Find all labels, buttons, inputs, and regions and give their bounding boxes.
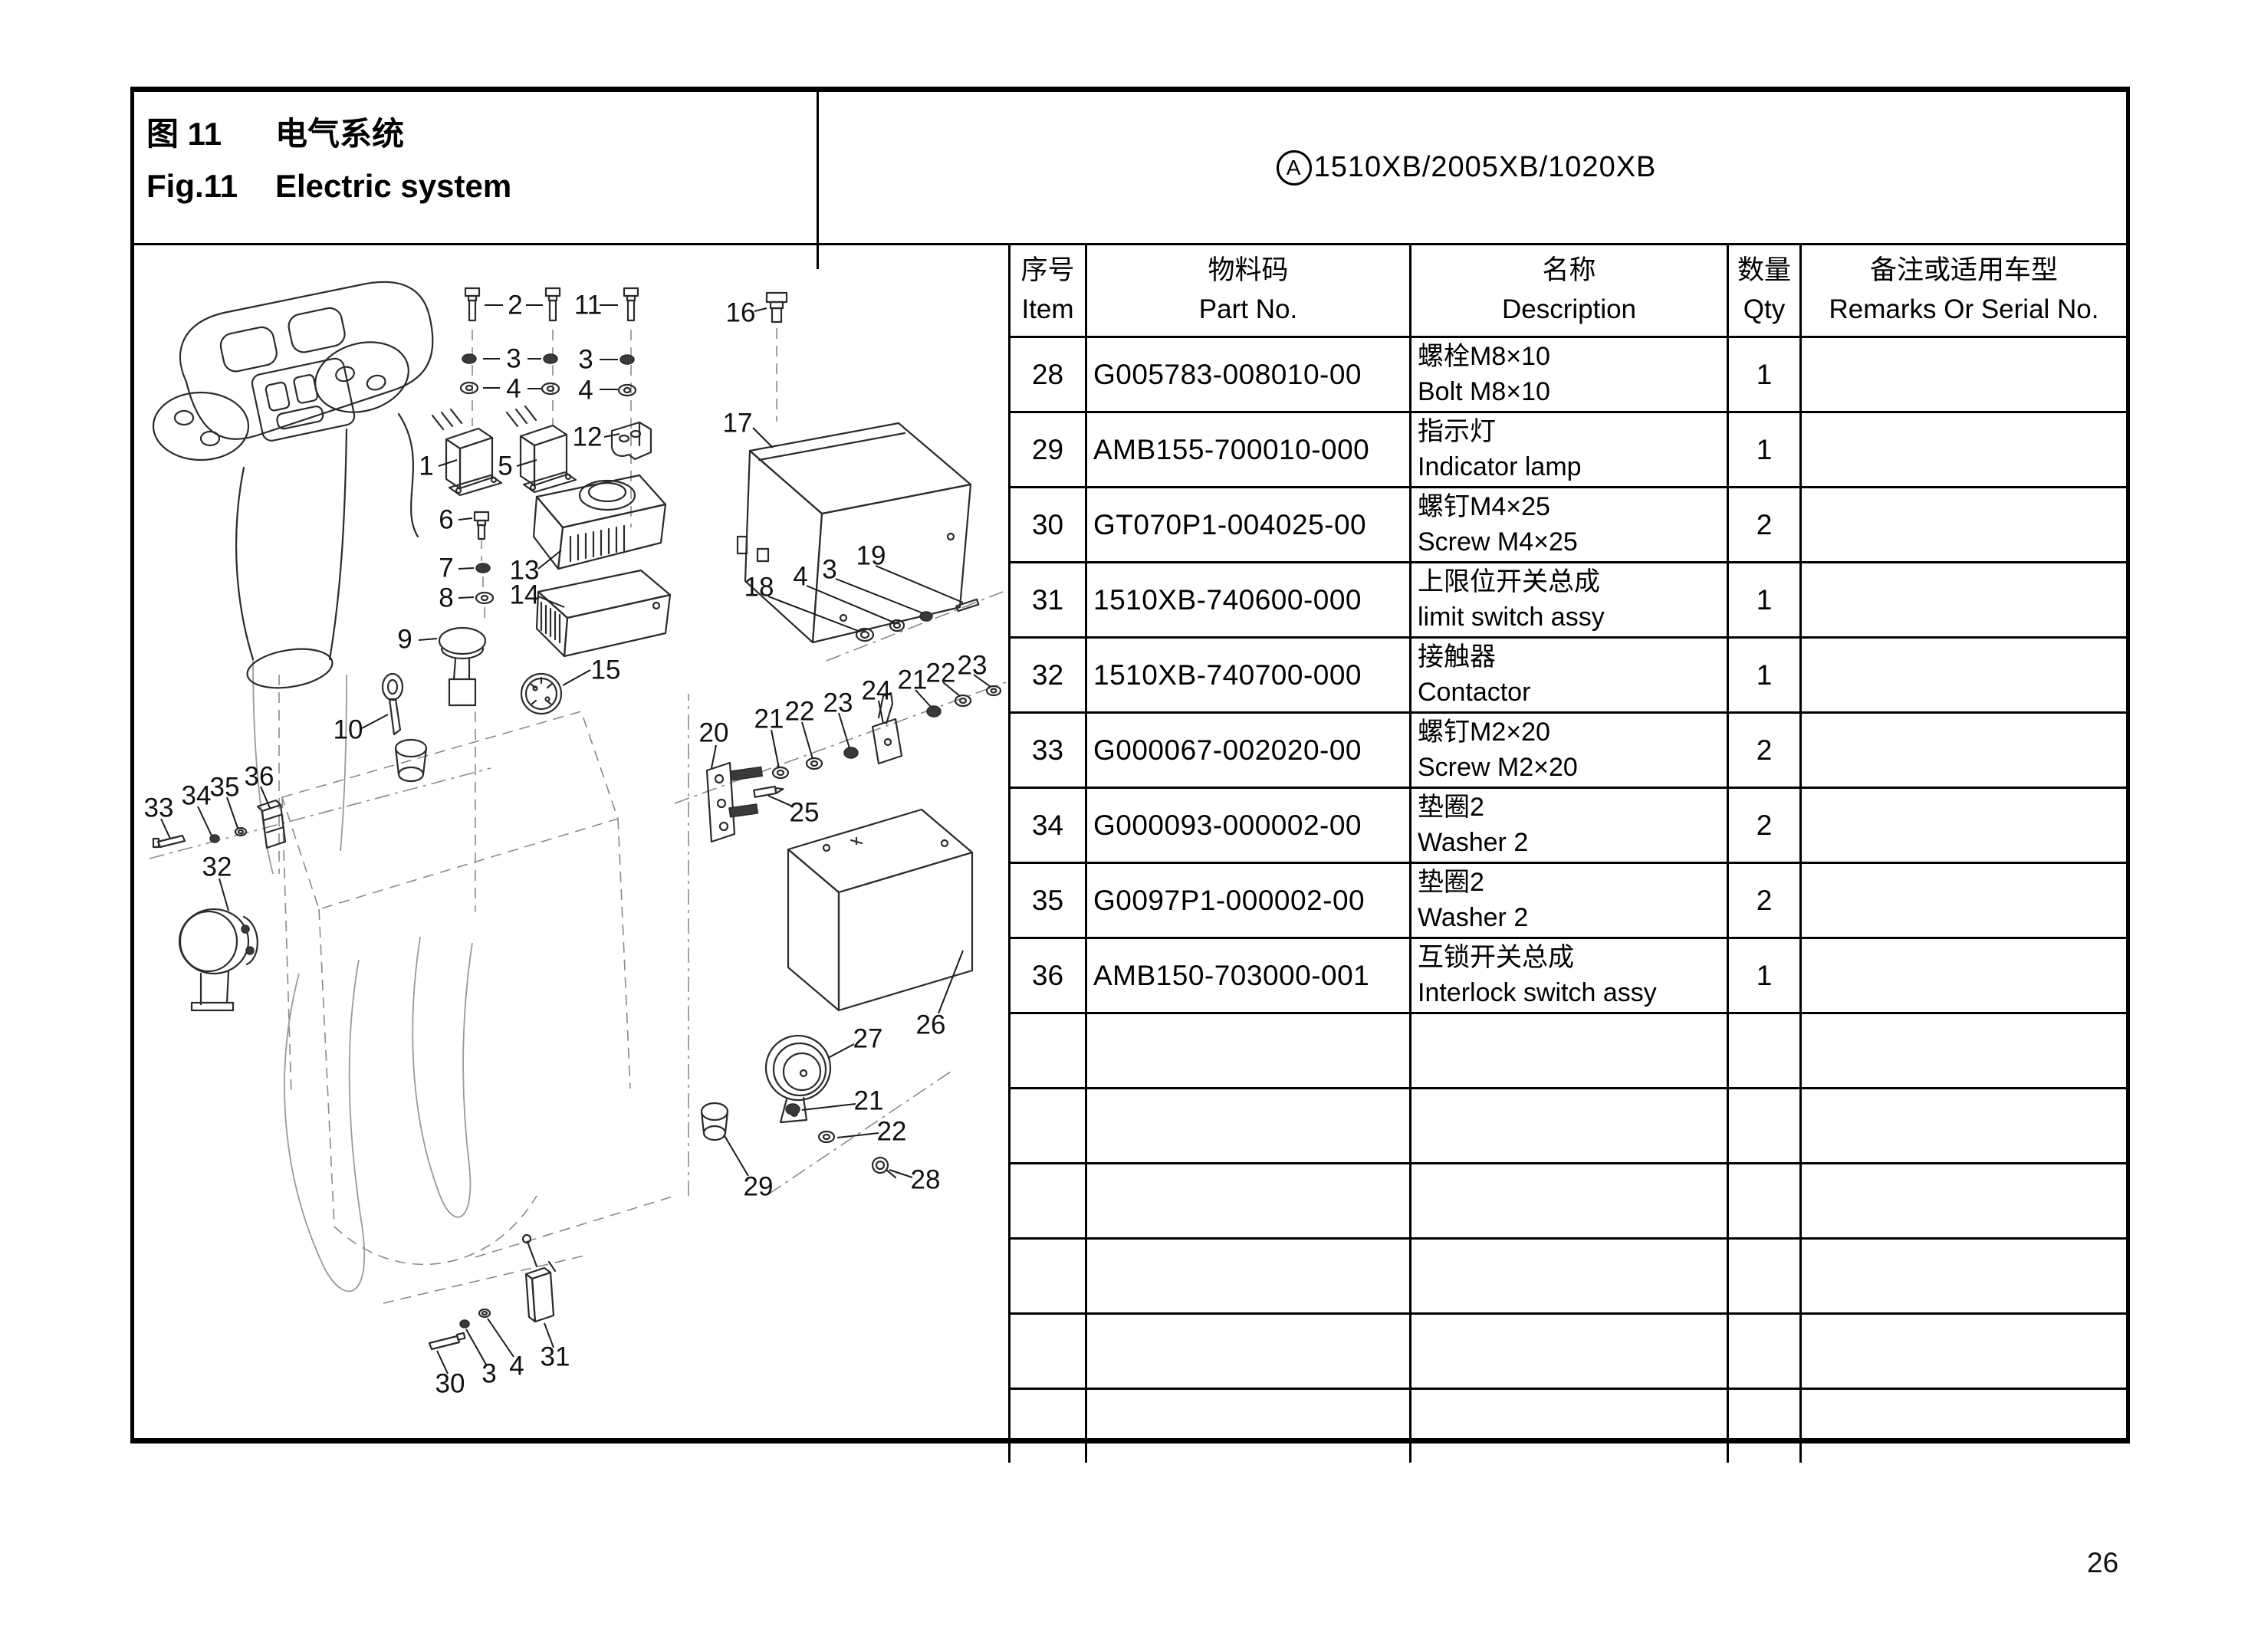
cell-part-no: G000067-002020-00 <box>1086 713 1411 788</box>
table-row-empty <box>1010 1013 2127 1089</box>
callout-26: 26 <box>916 1010 946 1040</box>
callout-3: 3 <box>481 1359 496 1389</box>
callout-23: 23 <box>823 688 853 718</box>
cell-item: 29 <box>1010 412 1086 488</box>
callout-28: 28 <box>911 1165 941 1195</box>
cell-qty: 2 <box>1728 788 1801 863</box>
callout-22: 22 <box>877 1117 907 1147</box>
callout-29: 29 <box>744 1172 774 1202</box>
table-row-empty <box>1010 1389 2127 1463</box>
callout-12: 12 <box>573 422 603 452</box>
callout-25: 25 <box>790 798 820 828</box>
callout-22: 22 <box>926 659 956 688</box>
callout-34: 34 <box>182 781 212 811</box>
callout-9: 9 <box>397 625 412 655</box>
callout-3: 3 <box>578 345 593 375</box>
table-row-34: 34 G000093-000002-00 垫圈2Washer 2 2 <box>1010 788 2127 863</box>
page-number: 26 <box>2087 1547 2118 1579</box>
cell-item: 36 <box>1010 938 1086 1013</box>
table-row-32: 32 1510XB-740700-000 接触器Contactor 1 <box>1010 638 2127 713</box>
col-header-description: 名称Description <box>1411 245 1728 337</box>
callout-10: 10 <box>334 715 363 745</box>
callout-11: 11 <box>574 291 602 320</box>
callout-36: 36 <box>245 762 274 792</box>
table-row-31: 31 1510XB-740600-000 上限位开关总成limit switch… <box>1010 563 2127 638</box>
callout-27: 27 <box>853 1024 883 1054</box>
cell-item: 33 <box>1010 713 1086 788</box>
callout-4: 4 <box>793 562 807 592</box>
cell-qty: 1 <box>1728 563 1801 638</box>
callout-18: 18 <box>744 573 774 603</box>
callout-20: 20 <box>699 718 729 748</box>
content-frame: 图 11电气系统 Fig.11Electric system A 1510XB/… <box>130 87 2130 1443</box>
cell-description: 上限位开关总成limit switch assy <box>1411 563 1728 638</box>
callout-21: 21 <box>754 704 784 734</box>
cell-description: 接触器Contactor <box>1411 638 1728 713</box>
cell-remarks <box>1801 337 2127 412</box>
figure-number-en: Fig.11 <box>146 170 275 202</box>
callout-31: 31 <box>541 1342 570 1372</box>
manual-page: { "page_number": "26", "title_block": { … <box>0 0 2261 1652</box>
cell-part-no: G0097P1-000002-00 <box>1086 863 1411 938</box>
cell-part-no: 1510XB-740700-000 <box>1086 638 1411 713</box>
callout-3: 3 <box>506 344 521 374</box>
callout-16: 16 <box>726 298 756 328</box>
callout-1: 1 <box>419 452 433 481</box>
cell-description: 指示灯Indicator lamp <box>1411 412 1728 488</box>
cell-qty: 2 <box>1728 863 1801 938</box>
cell-part-no: AMB155-700010-000 <box>1086 412 1411 488</box>
col-header-item: 序号Item <box>1010 245 1086 337</box>
callout-labels: 2111633441217156713814915101843192021222… <box>144 291 988 1399</box>
cell-remarks <box>1801 488 2127 563</box>
table-row-empty <box>1010 1239 2127 1314</box>
cell-remarks <box>1801 638 2127 713</box>
diagram-svg: 2111633441217156713814915101843192021222… <box>134 245 1008 1438</box>
callout-4: 4 <box>506 374 521 404</box>
figure-number-cn: 图 11 <box>146 118 275 150</box>
cell-remarks <box>1801 713 2127 788</box>
figure-name-cn: 电气系统 <box>275 116 404 152</box>
cell-qty: 1 <box>1728 638 1801 713</box>
parts-table: 序号Item 物料码Part No. 名称Description 数量Qty 备… <box>1008 245 2126 1438</box>
cell-item: 35 <box>1010 863 1086 938</box>
cell-description: 螺栓M8×10Bolt M8×10 <box>1411 337 1728 412</box>
col-header-part-no: 物料码Part No. <box>1086 245 1411 337</box>
cell-item: 31 <box>1010 563 1086 638</box>
cell-qty: 1 <box>1728 337 1801 412</box>
cell-qty: 1 <box>1728 938 1801 1013</box>
cell-part-no: G000093-000002-00 <box>1086 788 1411 863</box>
circled-a-marker: A <box>1277 150 1312 186</box>
cell-item: 30 <box>1010 488 1086 563</box>
callout-8: 8 <box>439 583 453 613</box>
table-row-empty <box>1010 1164 2127 1239</box>
callout-2: 2 <box>508 291 522 320</box>
cell-remarks <box>1801 412 2127 488</box>
cell-description: 垫圈2Washer 2 <box>1411 788 1728 863</box>
cell-remarks <box>1801 863 2127 938</box>
callout-24: 24 <box>862 676 892 706</box>
col-header-remarks: 备注或适用车型Remarks Or Serial No. <box>1801 245 2127 337</box>
cell-item: 28 <box>1010 337 1086 412</box>
callout-7: 7 <box>439 553 453 583</box>
cell-qty: 2 <box>1728 488 1801 563</box>
callout-19: 19 <box>856 541 886 571</box>
table-row-30: 30 GT070P1-004025-00 螺钉M4×25Screw M4×25 … <box>1010 488 2127 563</box>
callout-6: 6 <box>439 505 453 535</box>
callout-21: 21 <box>854 1086 884 1116</box>
cell-part-no: AMB150-703000-001 <box>1086 938 1411 1013</box>
table-row-28: 28 G005783-008010-00 螺栓M8×10Bolt M8×10 1 <box>1010 337 2127 412</box>
table-row-36: 36 AMB150-703000-001 互锁开关总成Interlock swi… <box>1010 938 2127 1013</box>
model-list: 1510XB/2005XB/1020XB <box>1314 151 1657 184</box>
callout-22: 22 <box>785 697 815 727</box>
cell-part-no: GT070P1-004025-00 <box>1086 488 1411 563</box>
callout-5: 5 <box>498 452 512 481</box>
callout-33: 33 <box>144 793 174 823</box>
parts-table-grid: 序号Item 物料码Part No. 名称Description 数量Qty 备… <box>1008 245 2126 1463</box>
cell-remarks <box>1801 563 2127 638</box>
cell-part-no: G005783-008010-00 <box>1086 337 1411 412</box>
cell-part-no: 1510XB-740600-000 <box>1086 563 1411 638</box>
cell-item: 34 <box>1010 788 1086 863</box>
table-row-35: 35 G0097P1-000002-00 垫圈2Washer 2 2 <box>1010 863 2127 938</box>
cell-remarks <box>1801 938 2127 1013</box>
figure-title-block: 图 11电气系统 Fig.11Electric system <box>134 92 819 269</box>
model-applicability: A 1510XB/2005XB/1020XB <box>807 92 2126 243</box>
table-header-row: 序号Item 物料码Part No. 名称Description 数量Qty 备… <box>1010 245 2127 337</box>
callout-32: 32 <box>202 852 232 882</box>
callout-30: 30 <box>435 1369 465 1399</box>
table-row-empty <box>1010 1314 2127 1389</box>
cell-description: 互锁开关总成Interlock switch assy <box>1411 938 1728 1013</box>
callout-4: 4 <box>578 376 593 406</box>
table-row-empty <box>1010 1089 2127 1164</box>
cell-description: 垫圈2Washer 2 <box>1411 863 1728 938</box>
cell-remarks <box>1801 788 2127 863</box>
callout-21: 21 <box>898 665 928 695</box>
col-header-qty: 数量Qty <box>1728 245 1801 337</box>
table-row-29: 29 AMB155-700010-000 指示灯Indicator lamp 1 <box>1010 412 2127 488</box>
callout-35: 35 <box>210 773 240 803</box>
callout-3: 3 <box>822 555 836 585</box>
figure-title-cn: 图 11电气系统 <box>146 118 817 150</box>
table-row-33: 33 G000067-002020-00 螺钉M2×20Screw M2×20 … <box>1010 713 2127 788</box>
figure-title-en: Fig.11Electric system <box>146 170 817 202</box>
cell-qty: 2 <box>1728 713 1801 788</box>
callout-23: 23 <box>958 651 988 681</box>
cell-qty: 1 <box>1728 412 1801 488</box>
callout-17: 17 <box>723 409 753 438</box>
exploded-view-diagram: 2111633441217156713814915101843192021222… <box>134 245 1008 1438</box>
callout-15: 15 <box>591 655 621 685</box>
callout-14: 14 <box>510 580 540 610</box>
cell-item: 32 <box>1010 638 1086 713</box>
cell-description: 螺钉M2×20Screw M2×20 <box>1411 713 1728 788</box>
callout-4: 4 <box>509 1351 524 1381</box>
figure-name-en: Electric system <box>275 168 511 204</box>
cell-description: 螺钉M4×25Screw M4×25 <box>1411 488 1728 563</box>
header-band: 图 11电气系统 Fig.11Electric system A 1510XB/… <box>134 92 2126 245</box>
